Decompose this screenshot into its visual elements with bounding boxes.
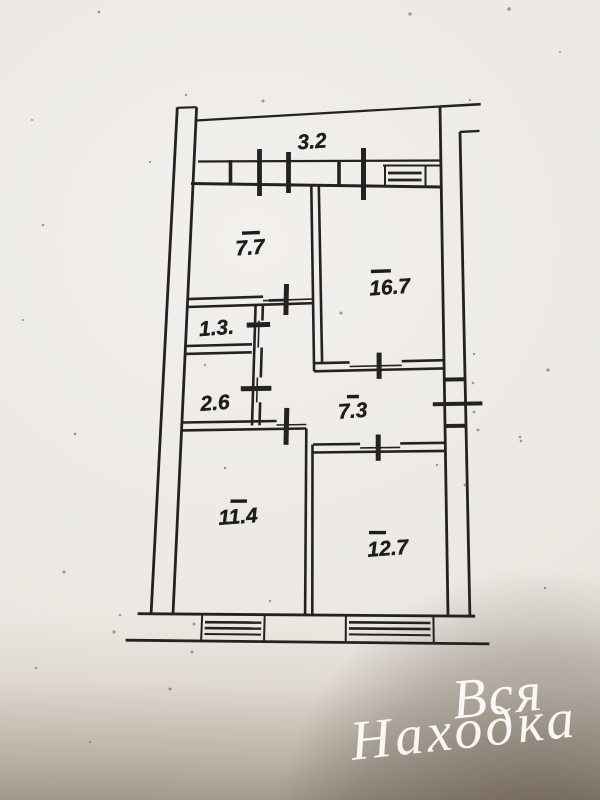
svg-text:12.7: 12.7 [367, 536, 411, 562]
svg-text:7.3: 7.3 [337, 399, 368, 424]
svg-text:1.3.: 1.3. [198, 316, 235, 341]
svg-text:2.6: 2.6 [199, 391, 231, 416]
svg-text:16.7: 16.7 [368, 275, 412, 301]
svg-text:11.4: 11.4 [218, 504, 259, 530]
svg-text:7.7: 7.7 [235, 235, 267, 260]
svg-text:3.2: 3.2 [297, 129, 328, 154]
